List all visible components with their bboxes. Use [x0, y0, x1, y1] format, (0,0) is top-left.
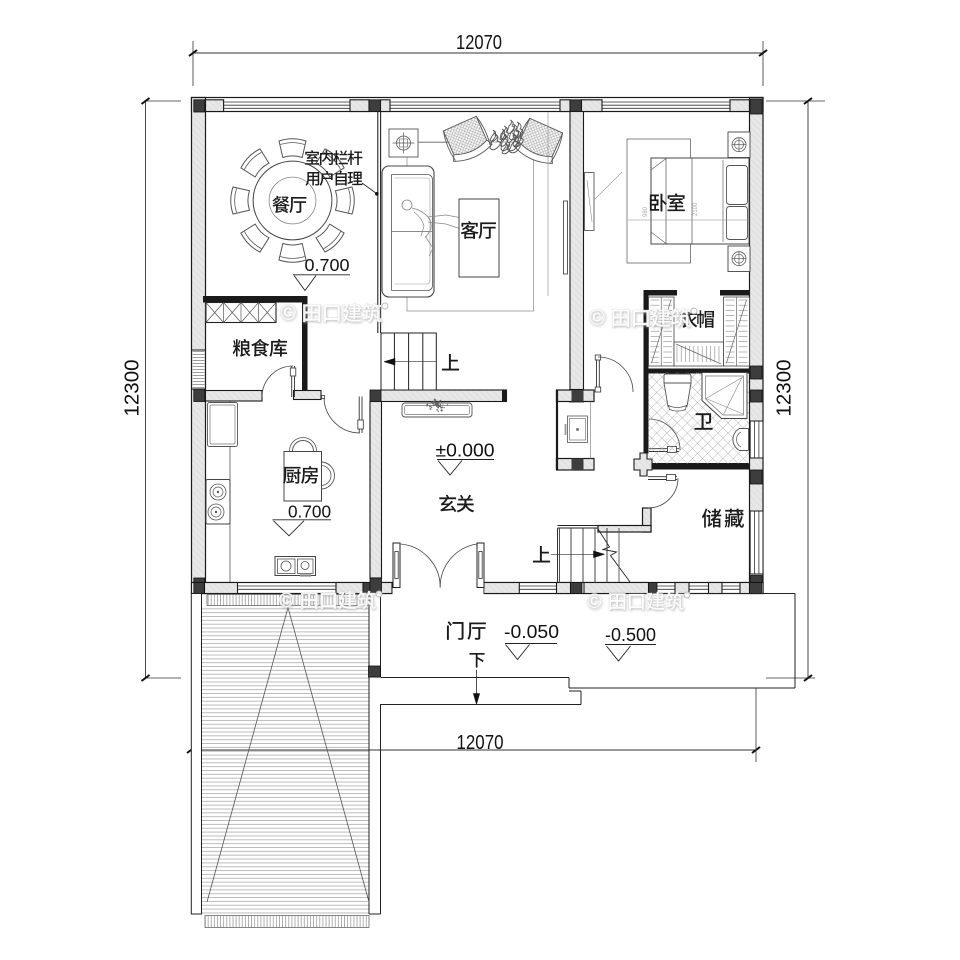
- svg-text:-0.500: -0.500: [605, 624, 656, 645]
- svg-text:12070: 12070: [457, 731, 504, 754]
- svg-text:±0.000: ±0.000: [436, 440, 495, 461]
- svg-text:2100: 2100: [693, 202, 699, 216]
- svg-text:©: ©: [589, 305, 605, 330]
- svg-text:0.700: 0.700: [305, 255, 350, 275]
- svg-text:12300: 12300: [773, 360, 796, 417]
- svg-text:12300: 12300: [121, 360, 144, 417]
- svg-text:-0.050: -0.050: [504, 621, 559, 642]
- svg-text:0.700: 0.700: [288, 501, 331, 521]
- svg-text:12070: 12070: [456, 31, 502, 54]
- svg-text:©: ©: [280, 300, 296, 325]
- svg-text:©: ©: [279, 590, 294, 612]
- svg-text:©: ©: [587, 591, 602, 613]
- svg-text:980: 980: [643, 206, 649, 217]
